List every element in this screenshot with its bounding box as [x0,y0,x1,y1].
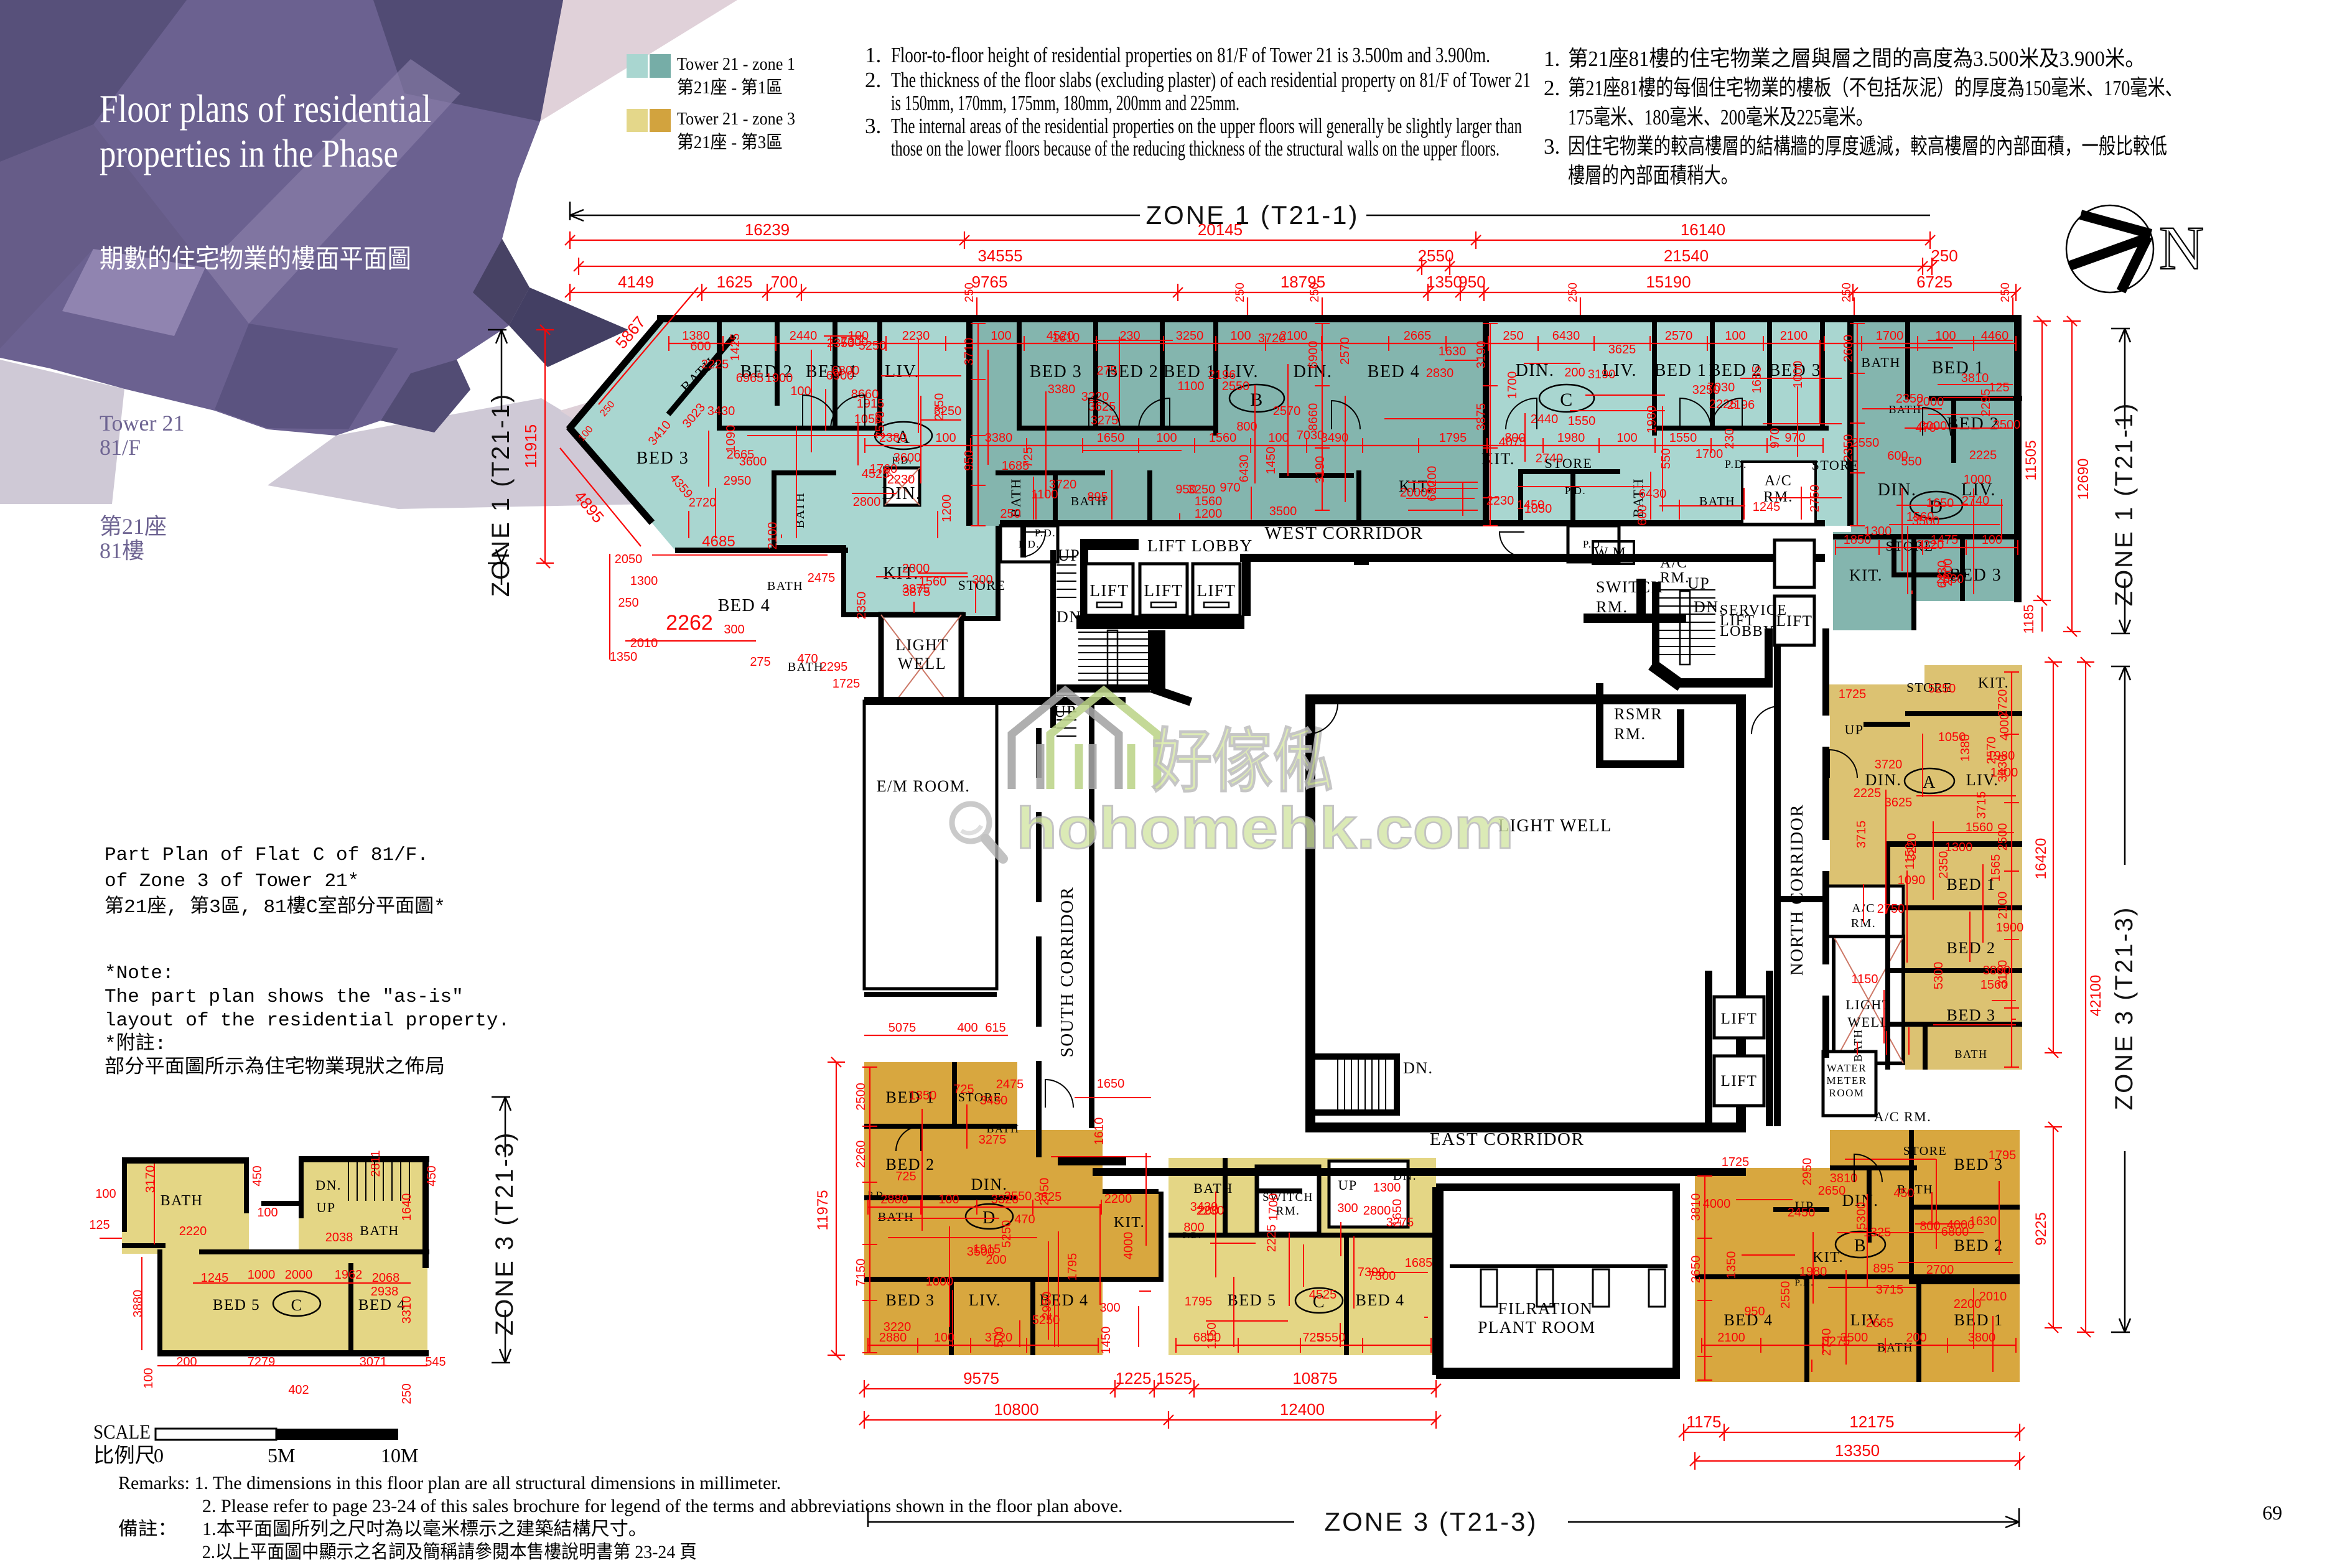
svg-text:725: 725 [1302,1331,1323,1345]
svg-text:175毫米、180毫米、200毫米及225毫米。: 175毫米、180毫米、200毫米及225毫米。 [1568,105,1873,129]
svg-text:UP: UP [1058,546,1080,564]
svg-text:2500: 2500 [854,1083,868,1111]
svg-text:2570: 2570 [1985,737,1999,765]
svg-text:2230: 2230 [902,329,930,343]
svg-text:1200: 1200 [940,495,954,523]
svg-text:1300: 1300 [1373,1181,1401,1195]
svg-text:100: 100 [95,1187,116,1201]
svg-text:3.: 3. [1544,134,1560,159]
svg-text:3380: 3380 [1048,383,1076,396]
svg-text:2225: 2225 [1854,786,1882,800]
svg-text:A/C RM.: A/C RM. [1874,1109,1931,1124]
svg-text:METER: METER [1826,1075,1867,1086]
svg-text:1550: 1550 [1568,414,1596,428]
svg-text:BED 3: BED 3 [637,449,689,468]
svg-text:3275: 3275 [979,1133,1007,1147]
svg-text:3715: 3715 [1855,821,1868,849]
svg-text:BED 2: BED 2 [1947,939,1996,957]
svg-text:725: 725 [953,1083,974,1096]
svg-text:3800: 3800 [1968,1331,1996,1345]
svg-text:9575: 9575 [963,1369,999,1388]
svg-text:N: N [2159,213,2204,282]
svg-text:200: 200 [1906,1331,1926,1345]
svg-text:34555: 34555 [977,246,1022,265]
svg-text:3880: 3880 [131,1290,145,1318]
svg-text:2225: 2225 [1265,1225,1279,1253]
svg-text:BED 4: BED 4 [1368,362,1420,381]
svg-text:2350: 2350 [1937,851,1951,879]
svg-text:2950: 2950 [1801,1158,1814,1186]
svg-text:A/C: A/C [1660,555,1688,571]
svg-text:Tower 21: Tower 21 [100,411,184,436]
svg-text:402: 402 [288,1383,309,1397]
svg-text:7030: 7030 [1707,381,1735,394]
svg-text:1900: 1900 [1996,921,2024,935]
svg-text:SOUTH CORRIDOR: SOUTH CORRIDOR [1057,887,1077,1058]
svg-text:230: 230 [1723,428,1737,449]
svg-text:2938: 2938 [371,1285,399,1299]
svg-text:1.: 1. [865,43,881,67]
svg-text:第21座: 第21座 [100,514,167,539]
svg-text:3800: 3800 [1983,964,2011,978]
svg-text:3720: 3720 [1875,758,1903,772]
svg-text:3170: 3170 [144,1165,157,1193]
svg-text:895: 895 [1873,1262,1893,1276]
svg-text:100: 100 [1616,431,1637,445]
svg-text:3720: 3720 [1049,478,1077,492]
svg-text:700: 700 [771,273,798,291]
svg-text:Tower 21 - zone 1: Tower 21 - zone 1 [677,54,795,74]
svg-text:500: 500 [992,1327,1006,1347]
svg-text:4000: 4000 [1703,1197,1731,1211]
svg-text:BATH: BATH [1954,1048,1987,1060]
svg-text:1610: 1610 [1093,1118,1106,1146]
svg-text:3430: 3430 [707,404,735,418]
svg-text:2010: 2010 [1979,1290,2007,1304]
svg-text:BATH: BATH [878,1210,914,1224]
svg-text:ZONE 1 (T21-1): ZONE 1 (T21-1) [487,393,515,597]
svg-text:5300: 5300 [1932,962,1946,990]
svg-text:4525: 4525 [1309,1288,1337,1302]
svg-text:第21座 - 第3區: 第21座 - 第3區 [677,132,783,152]
svg-text:6430: 6430 [1238,455,1251,483]
svg-text:2650: 2650 [1689,1256,1703,1284]
svg-text:RM.: RM. [1596,598,1628,616]
svg-text:1550: 1550 [1669,431,1697,445]
svg-text:2038: 2038 [325,1231,353,1244]
svg-text:3500: 3500 [1269,505,1297,518]
svg-text:2800: 2800 [1363,1204,1391,1218]
svg-text:545: 545 [425,1355,445,1369]
svg-text:1630: 1630 [1969,1215,1997,1228]
svg-text:970: 970 [1768,427,1782,448]
svg-text:1795: 1795 [1989,1149,2017,1162]
svg-text:FILRATION: FILRATION [1498,1299,1593,1318]
svg-text:1380: 1380 [1959,734,1972,762]
svg-text:275: 275 [1096,364,1117,378]
svg-text:2811: 2811 [369,1150,383,1177]
svg-text:C: C [291,1296,303,1314]
svg-text:1100: 1100 [1177,380,1204,393]
svg-text:DIN.: DIN. [971,1175,1008,1193]
svg-text:2700: 2700 [1926,1263,1954,1277]
svg-text:1700: 1700 [1876,329,1904,343]
svg-text:2230: 2230 [1486,494,1514,508]
svg-text:SWITCH: SWITCH [1596,578,1664,596]
svg-text:3715: 3715 [1876,1283,1904,1297]
svg-text:LIFT LOBBY: LIFT LOBBY [1147,536,1253,555]
svg-text:2570: 2570 [1338,337,1352,365]
svg-text:10M: 10M [381,1444,418,1467]
svg-text:2475: 2475 [996,1078,1024,1091]
svg-text:1400: 1400 [1990,766,2018,780]
svg-text:P.D.: P.D. [1725,458,1747,470]
svg-text:2260: 2260 [854,1141,868,1169]
svg-text:4525: 4525 [862,467,890,481]
svg-text:1650: 1650 [1097,431,1125,445]
svg-text:The thickness of the floor sla: The thickness of the floor slabs (exclud… [891,68,1531,92]
svg-text:1650: 1650 [1926,497,1954,510]
svg-text:3875: 3875 [1475,403,1488,431]
svg-text:1.: 1. [1544,47,1560,71]
svg-text:1450: 1450 [1099,1327,1113,1355]
svg-text:6965: 6965 [736,371,764,385]
svg-text:KIT.: KIT. [1978,675,2009,691]
svg-text:2350: 2350 [1896,392,1924,406]
svg-text:5250: 5250 [1928,682,1956,696]
svg-text:250: 250 [1931,246,1957,265]
svg-text:第21座 - 第1區: 第21座 - 第1區 [677,77,783,98]
svg-text:3500: 3500 [1912,515,1940,528]
svg-text:RSMR: RSMR [1614,705,1663,723]
svg-text:615: 615 [985,1021,1005,1035]
svg-text:ZONE 3 (T21-3): ZONE 3 (T21-3) [491,1131,518,1336]
svg-text:第21座, 第3區, 81樓C室部分平面圖*: 第21座, 第3區, 81樓C室部分平面圖* [105,895,445,918]
svg-text:1150: 1150 [1205,1322,1219,1349]
svg-text:Floor plans of residential: Floor plans of residential [100,86,431,131]
svg-text:2230: 2230 [887,473,915,487]
svg-text:2750: 2750 [1877,902,1905,916]
svg-text:ZONE 3 (T21-3): ZONE 3 (T21-3) [1324,1507,1537,1536]
svg-text:9765: 9765 [972,273,1008,291]
svg-text:LIFT: LIFT [1721,1010,1758,1027]
svg-text:BED 3: BED 3 [886,1291,935,1309]
svg-text:2000: 2000 [1400,486,1428,500]
svg-text:2. Please refer to page 23-24: 2. Please refer to page 23-24 of this sa… [202,1496,1123,1516]
svg-text:ZONE 1 (T21-1): ZONE 1 (T21-1) [1145,200,1359,230]
svg-text:1625: 1625 [717,273,753,291]
svg-text:2100: 2100 [1996,892,2010,920]
svg-text:2440: 2440 [790,329,818,343]
svg-text:2550: 2550 [1852,436,1880,450]
svg-text:2350: 2350 [827,337,855,350]
svg-text:250: 250 [1000,507,1020,521]
svg-text:Remarks: 1. The dimensions in: Remarks: 1. The dimensions in this floor… [118,1473,781,1493]
svg-text:1560: 1560 [1980,978,2008,992]
svg-text:970: 970 [1220,481,1240,495]
svg-text:2295: 2295 [1979,389,1993,417]
svg-text:2450: 2450 [1038,1178,1052,1206]
svg-text:部分平面圖所示為住宅物業現狀之佈局: 部分平面圖所示為住宅物業現狀之佈局 [105,1056,445,1079]
svg-text:3000: 3000 [1920,419,1947,433]
svg-text:is 150mm, 170mm, 175mm, 180mm,: is 150mm, 170mm, 175mm, 180mm, 200mm and… [891,91,1239,115]
svg-text:A: A [1923,773,1936,792]
svg-text:12400: 12400 [1280,1400,1325,1419]
svg-text:1685: 1685 [1002,459,1030,473]
svg-text:10875: 10875 [1292,1369,1337,1388]
svg-text:3190: 3190 [1313,456,1327,484]
svg-text:200: 200 [176,1355,197,1369]
svg-text:3310: 3310 [400,1296,414,1324]
svg-text:2196: 2196 [1208,368,1236,382]
svg-text:LIV.: LIV. [885,362,920,381]
svg-text:2200: 2200 [1104,1192,1132,1206]
svg-text:100: 100 [142,1368,156,1388]
svg-text:11505: 11505 [2023,441,2040,481]
svg-text:3810: 3810 [1830,1172,1858,1185]
svg-text:400: 400 [957,1021,977,1035]
svg-text:250: 250 [1567,282,1580,302]
svg-text:4149: 4149 [618,273,654,291]
svg-text:2570: 2570 [1273,404,1301,418]
svg-text:2600: 2600 [1842,335,1855,363]
svg-text:6430: 6430 [1552,329,1580,343]
svg-text:200: 200 [1564,366,1585,380]
svg-text:450: 450 [1893,1187,1914,1200]
svg-text:ROOM: ROOM [1829,1087,1864,1099]
svg-text:550: 550 [1659,448,1673,469]
svg-text:第21座81樓的住宅物業之層與層之間的高度為3.500米及3: 第21座81樓的住宅物業之層與層之間的高度為3.500米及3.900米。 [1568,47,2145,71]
svg-text:3625: 3625 [1608,343,1636,357]
svg-text:3430: 3430 [980,1094,1008,1108]
svg-text:LIV.: LIV. [969,1291,1001,1309]
svg-text:4000: 4000 [1122,1232,1136,1260]
svg-text:2295: 2295 [820,660,848,674]
svg-text:550: 550 [1901,455,1921,469]
svg-text:300: 300 [724,623,744,637]
svg-text:1350: 1350 [909,1089,937,1103]
svg-text:3550: 3550 [1004,1190,1032,1203]
svg-text:2.: 2. [865,68,881,92]
svg-text:970: 970 [1784,431,1805,445]
svg-text:7150: 7150 [854,1259,868,1287]
svg-text:3250: 3250 [1176,329,1204,343]
svg-text:250: 250 [1308,282,1322,302]
svg-text:2000: 2000 [285,1268,313,1282]
svg-text:2880: 2880 [880,1193,908,1206]
svg-text:3.: 3. [865,114,881,138]
svg-text:1350: 1350 [610,650,638,664]
svg-text:3810: 3810 [1689,1193,1703,1221]
svg-text:BATH: BATH [1861,355,1900,370]
svg-text:UP: UP [1687,574,1710,592]
svg-text:11915: 11915 [521,424,540,468]
svg-text:1200: 1200 [1195,507,1223,521]
svg-text:1725: 1725 [1839,688,1867,701]
svg-text:LIGHT: LIGHT [895,636,948,654]
svg-text:21540: 21540 [1664,246,1709,265]
svg-text:BED 4: BED 4 [718,596,771,615]
svg-text:300: 300 [1099,1301,1120,1315]
svg-text:2800: 2800 [853,495,881,509]
svg-text:3250: 3250 [934,404,962,418]
svg-text:1795: 1795 [1439,431,1467,445]
svg-text:BED 2: BED 2 [1954,1236,2003,1254]
svg-text:2225: 2225 [701,358,729,371]
svg-text:125: 125 [89,1218,110,1232]
svg-text:3500: 3500 [1993,418,2021,432]
svg-text:BED 5: BED 5 [213,1297,260,1314]
svg-text:2665: 2665 [1866,1317,1894,1330]
svg-text:DN.: DN. [1403,1059,1434,1077]
svg-text:3220: 3220 [884,1320,912,1334]
svg-text:2550: 2550 [1779,1281,1793,1309]
svg-text:100: 100 [991,329,1011,343]
svg-text:KIT.: KIT. [1114,1215,1145,1231]
svg-text:250: 250 [1840,282,1854,302]
svg-text:470: 470 [1014,1213,1035,1226]
svg-text:2570: 2570 [874,411,887,439]
svg-text:1560: 1560 [1195,495,1223,508]
svg-text:3720: 3720 [1258,332,1286,345]
svg-text:3710: 3710 [963,338,976,366]
svg-text:1150: 1150 [1851,973,1878,986]
svg-text:BATH: BATH [793,492,807,528]
svg-text:1980: 1980 [1557,431,1585,445]
svg-text:Part Plan of Flat C of 81/F.: Part Plan of Flat C of 81/F. [105,844,429,866]
svg-text:895: 895 [1087,490,1108,504]
svg-text:1700: 1700 [1696,447,1724,461]
svg-text:BED 5: BED 5 [1228,1291,1277,1309]
svg-text:450: 450 [425,1165,439,1186]
svg-text:250: 250 [1999,282,2012,302]
svg-text:4685: 4685 [702,533,735,550]
svg-text:BED 3: BED 3 [1947,1006,1996,1024]
svg-text:12175: 12175 [1849,1412,1894,1431]
svg-text:WELL: WELL [1847,1014,1889,1030]
svg-text:The part plan shows the "as-is: The part plan shows the "as-is" [105,986,464,1008]
svg-text:600: 600 [1636,505,1649,525]
svg-text:BED 1: BED 1 [1954,1311,2003,1329]
svg-text:BATH: BATH [360,1223,399,1238]
svg-text:1000: 1000 [1791,361,1805,389]
svg-text:UP: UP [1338,1177,1357,1193]
svg-text:6725: 6725 [1916,273,1952,291]
svg-text:4000: 4000 [1998,713,2012,741]
svg-text:DN.: DN. [315,1177,342,1193]
svg-text:3275: 3275 [1091,414,1119,427]
svg-text:1.本平面圖所列之尺吋為以毫米標示之建築結構尺寸。: 1.本平面圖所列之尺吋為以毫米標示之建築結構尺寸。 [202,1519,647,1539]
svg-text:1185: 1185 [2021,604,2036,633]
svg-text:BED 3: BED 3 [1030,362,1083,381]
svg-text:2.: 2. [1544,76,1560,100]
svg-text:1090: 1090 [724,425,738,453]
svg-text:9225: 9225 [2033,1212,2050,1245]
svg-text:LIFT: LIFT [1197,581,1236,600]
svg-text:2200: 2200 [1954,1297,1982,1311]
svg-text:2100: 2100 [1717,1331,1745,1345]
svg-text:those on the lower floors beca: those on the lower floors because of the… [891,136,1500,161]
svg-text:1685: 1685 [1405,1256,1433,1270]
svg-text:BATH: BATH [767,579,803,593]
svg-text:LOBBY: LOBBY [1720,623,1775,640]
svg-text:E/M ROOM.: E/M ROOM. [877,777,971,795]
svg-text:7279: 7279 [248,1355,276,1369]
svg-text:LIFT: LIFT [1721,1073,1758,1090]
svg-text:Floor-to-floor height of resid: Floor-to-floor height of residential pro… [891,43,1490,67]
svg-text:16420: 16420 [2033,838,2050,880]
svg-text:100: 100 [1156,431,1177,445]
svg-text:WATER: WATER [1827,1062,1867,1074]
svg-text:250: 250 [618,596,638,610]
svg-text:1640: 1640 [400,1193,414,1221]
svg-text:2650: 2650 [1818,1184,1846,1198]
svg-text:PLANT ROOM: PLANT ROOM [1478,1318,1595,1337]
svg-text:950: 950 [1458,273,1485,291]
svg-text:10800: 10800 [994,1400,1038,1419]
svg-text:600: 600 [690,340,711,353]
svg-text:15190: 15190 [1646,273,1691,291]
svg-text:0: 0 [154,1444,164,1467]
svg-text:200: 200 [986,1253,1006,1267]
svg-text:Tower 21 - zone 3: Tower 21 - zone 3 [677,109,795,129]
svg-text:第21座81樓的每個住宅物業的樓板（不包括灰泥）的厚度為15: 第21座81樓的每個住宅物業的樓板（不包括灰泥）的厚度為150毫米、170毫米、 [1568,76,2183,100]
svg-text:2200: 2200 [1425,466,1439,494]
svg-text:3600: 3600 [739,455,767,469]
svg-text:16239: 16239 [745,220,790,239]
svg-text:5M: 5M [268,1444,295,1467]
svg-text:5075: 5075 [889,1021,917,1035]
svg-text:3430: 3430 [1190,1200,1218,1214]
svg-text:DN.: DN. [1057,608,1087,626]
svg-text:1725: 1725 [833,677,861,691]
svg-text:NORTH CORRIDOR: NORTH CORRIDOR [1787,804,1807,976]
svg-text:12690: 12690 [2075,459,2092,500]
svg-text:950: 950 [963,450,976,470]
svg-text:3275: 3275 [1386,1216,1414,1230]
svg-text:250: 250 [1503,329,1523,343]
svg-text:7030: 7030 [1297,429,1325,442]
svg-text:BATH: BATH [1193,1180,1233,1196]
svg-text:1300: 1300 [630,574,658,588]
svg-text:450: 450 [251,1165,264,1186]
svg-text:1175: 1175 [1687,1412,1722,1431]
svg-text:3380: 3380 [985,431,1013,445]
svg-text:1450: 1450 [1264,447,1278,475]
svg-text:3190: 3190 [1475,341,1488,369]
svg-text:11975: 11975 [814,1190,831,1231]
svg-text:100: 100 [1230,329,1251,343]
svg-text:1090: 1090 [1898,874,1926,887]
svg-text:ZONE 1 (T21-1): ZONE 1 (T21-1) [2111,402,2138,607]
svg-text:1000: 1000 [248,1268,276,1282]
svg-text:1450: 1450 [1517,498,1545,512]
svg-text:2350: 2350 [855,592,869,620]
svg-text:BED 2: BED 2 [1947,414,2000,434]
svg-text:2740: 2740 [1536,452,1564,465]
svg-text:69: 69 [2262,1501,2282,1524]
svg-text:properties in the Phase: properties in the Phase [100,131,398,175]
svg-text:3625: 3625 [1088,400,1116,414]
svg-text:1980: 1980 [1645,406,1659,434]
svg-text:1900: 1900 [765,371,793,385]
svg-text:800: 800 [1236,420,1257,434]
svg-text:*附註:: *附註: [105,1032,166,1055]
svg-text:2.以上平面圖中顯示之名詞及簡稱請參閱本售樓說明書第 23-: 2.以上平面圖中顯示之名詞及簡稱請參閱本售樓說明書第 23-24 頁 [202,1542,697,1562]
svg-text:5250: 5250 [1032,1314,1060,1327]
svg-text:P.D.: P.D. [1794,1278,1814,1288]
svg-text:100: 100 [935,431,956,445]
